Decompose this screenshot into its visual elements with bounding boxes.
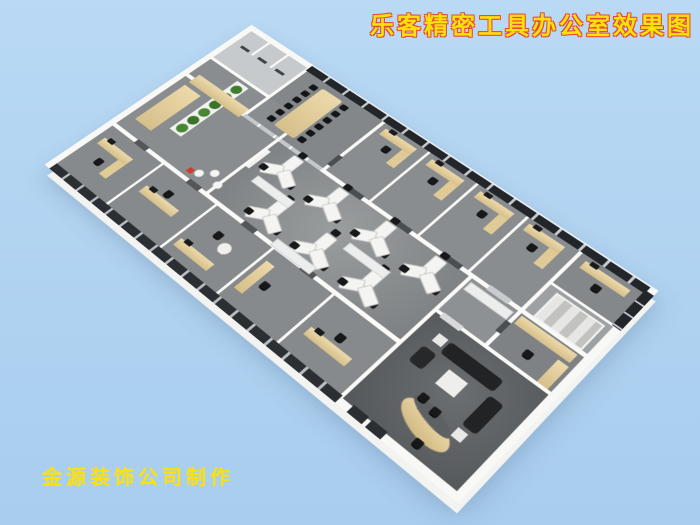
whiteboard: [246, 150, 271, 169]
red-accent-item: [186, 167, 196, 174]
round-stools: [208, 168, 222, 178]
plant-row: [228, 84, 245, 96]
office-desk: [474, 191, 515, 220]
planter-box: [170, 81, 249, 137]
desk-arm: [259, 162, 285, 176]
wall: [243, 68, 310, 116]
office-door: [185, 179, 202, 192]
task-chairs: [284, 195, 296, 204]
desk-arm: [304, 194, 330, 209]
conference-table: [274, 89, 343, 139]
conference-room-floor: [244, 69, 385, 170]
office-desk: [425, 159, 464, 186]
office-chair: [476, 209, 489, 219]
wall: [204, 120, 305, 195]
desk-arm: [244, 206, 271, 221]
lounge-sideboard: [189, 75, 249, 117]
office-chair: [427, 176, 439, 185]
restroom-stall-wall: [251, 42, 270, 55]
conference-glass-wall: [243, 114, 323, 171]
conference-chairs-right: [338, 104, 349, 112]
desk-arm: [400, 263, 427, 280]
office-3d-render-scene: [0, 0, 700, 525]
wall: [104, 162, 165, 206]
restroom-stall-doors: [240, 45, 250, 52]
lounge-floor: [114, 58, 302, 193]
wall: [321, 119, 388, 171]
desk-arm: [351, 228, 378, 244]
restroom-floor: [212, 31, 308, 97]
wall: [211, 57, 271, 98]
task-chairs: [389, 216, 401, 225]
office-chair: [380, 145, 392, 154]
studio-watermark: 金源装饰公司制作: [42, 461, 234, 490]
building-floorplan: [44, 25, 658, 504]
office-door: [346, 186, 365, 200]
office-credenza: [251, 175, 296, 208]
office-desk: [139, 185, 180, 217]
render-title: 乐客精密工具办公室效果图: [370, 6, 694, 41]
desk-arm: [338, 276, 366, 293]
office-desk: [97, 138, 133, 165]
y-desk-cluster: [299, 179, 360, 226]
lounge-cabinet: [135, 85, 201, 131]
restroom-stall-wall: [269, 55, 288, 69]
office-desk: [379, 129, 417, 155]
task-chairs: [297, 152, 308, 160]
conference-door: [327, 155, 343, 167]
y-desk-cluster: [254, 148, 314, 193]
office-door: [134, 139, 150, 151]
office-chair: [93, 157, 105, 166]
wall: [367, 149, 433, 203]
task-chairs: [342, 183, 354, 192]
office-chair: [162, 189, 174, 198]
conference-chairs-left: [308, 84, 319, 92]
